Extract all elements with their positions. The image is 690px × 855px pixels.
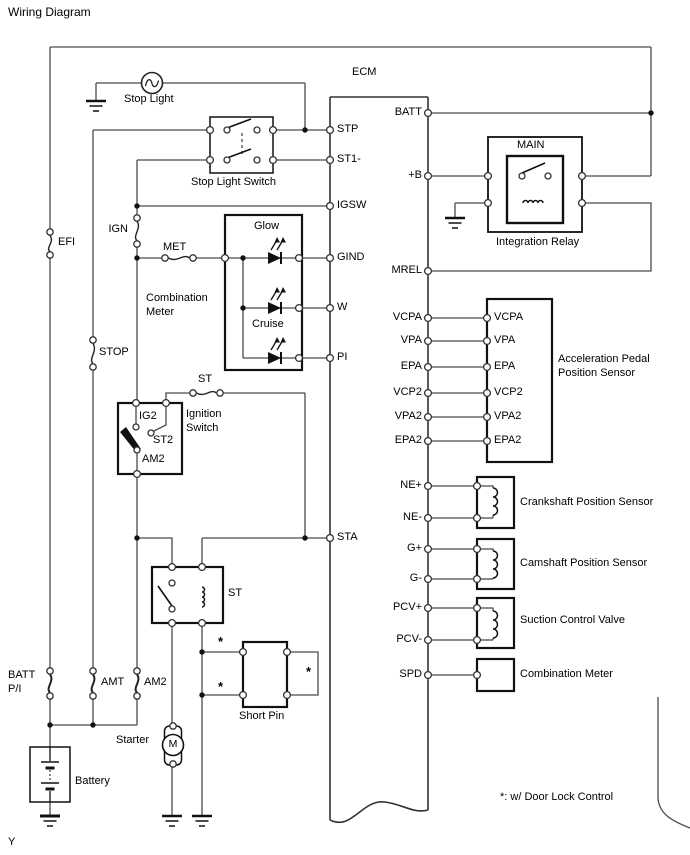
st-relay-coil-icon [202, 587, 205, 607]
st2-label: ST2 [153, 434, 173, 448]
door-lock-footnote: *: w/ Door Lock Control [500, 791, 613, 805]
spd-meter-label: Combination Meter [520, 668, 613, 682]
ig2-label: IG2 [139, 410, 157, 424]
stop-fuse-icon [92, 344, 95, 364]
stop-light-ground-icon [86, 101, 106, 111]
stop-switch-blade-2 [227, 149, 251, 158]
scv-coil-icon [493, 611, 498, 638]
am2-fuse-label: AM2 [144, 676, 167, 690]
ignition-switch-label: Ignition Switch [186, 408, 221, 436]
ecm-pin-ne-plus: NE+ [366, 479, 422, 493]
cam-sensor-box [477, 539, 514, 589]
batt-pi-fuse-label: BATT P/I [8, 669, 35, 697]
ecm-pin-pi: PI [337, 351, 347, 365]
ecm-pin-ne-minus: NE- [366, 511, 422, 525]
app-sensor-label: Acceleration Pedal Position Sensor [558, 353, 650, 381]
met-fuse-icon [169, 257, 190, 260]
app-pin-vcpa: VCPA [494, 311, 523, 325]
ign-fuse-label: IGN [98, 223, 128, 237]
switch-blades [120, 119, 545, 606]
ecm-pin-vcp2: VCP2 [366, 386, 422, 400]
stop-switch-blade-1 [227, 119, 251, 128]
battery-label: Battery [75, 775, 110, 789]
terminals [47, 110, 586, 700]
met-fuse-label: MET [163, 241, 186, 255]
efi-fuse-icon [49, 236, 52, 252]
ecm-label: ECM [352, 66, 376, 80]
main-relay-label: MAIN [517, 139, 545, 153]
ign-fuse-icon [136, 222, 139, 241]
ecm-pin-vpa2: VPA2 [366, 410, 422, 424]
main-relay-box [507, 156, 563, 223]
led-symbols [268, 237, 286, 364]
ecm-pin-spd: SPD [366, 668, 422, 682]
st-fuse-label: ST [198, 373, 212, 387]
amt-fuse-label: AMT [101, 676, 124, 690]
stop-light-bulb-icon [142, 73, 163, 94]
crank-sensor-label: Crankshaft Position Sensor [520, 496, 653, 510]
app-pin-epa: EPA [494, 360, 515, 374]
asterisk-bottom: * [218, 679, 223, 695]
ecm-pin-mrel: MREL [366, 264, 422, 278]
page-marker: Y [8, 836, 15, 850]
glow-led-icon [268, 237, 286, 264]
ecm-pin-batt: BATT [366, 106, 422, 120]
ecm-pin-vpa: VPA [366, 334, 422, 348]
starter-label: Starter [116, 734, 149, 748]
crank-sensor-box [477, 477, 514, 528]
cam-coil-icon [493, 551, 498, 578]
ecm-pin-w: W [337, 301, 347, 315]
stop-light-label: Stop Light [124, 93, 174, 107]
asterisk-right: * [306, 664, 311, 680]
main-relay-coil-icon [523, 201, 543, 203]
integration-relay-label: Integration Relay [496, 236, 579, 250]
ecm-pin-igsw: IGSW [337, 199, 366, 213]
st-relay-blade [158, 586, 172, 606]
amt-link-icon [92, 675, 95, 693]
scv-label: Suction Control Valve [520, 614, 625, 628]
batt-pi-link-icon [49, 675, 52, 693]
am2-link-icon [136, 675, 139, 693]
st-coil-ground-icon [192, 816, 212, 826]
glow-label: Glow [254, 220, 279, 234]
ecm-pin-plus-b: +B [366, 169, 422, 183]
app-pin-vpa: VPA [494, 334, 515, 348]
relay-ground-icon [445, 218, 465, 228]
motor-m-label: M [167, 738, 179, 751]
cruise-led-icon [268, 337, 286, 364]
crank-coil-icon [493, 488, 498, 515]
cam-sensor-label: Camshaft Position Sensor [520, 557, 647, 571]
app-pin-vcp2: VCP2 [494, 386, 523, 400]
starter-ground-icon [162, 816, 182, 826]
ecm-pin-pcv-minus: PCV- [366, 633, 422, 647]
ecm-pin-stp: STP [337, 123, 358, 137]
short-pin-box [243, 642, 287, 707]
combination-meter-box [225, 215, 302, 370]
ecm-pin-gind: GIND [337, 251, 365, 265]
short-pin-label: Short Pin [239, 710, 284, 724]
st-relay-box [152, 567, 223, 623]
ecm-pin-g-minus: G- [366, 572, 422, 586]
am2-contact-label: AM2 [142, 453, 165, 467]
battery-symbol [41, 747, 59, 802]
ecm-pin-epa: EPA [366, 360, 422, 374]
st-relay-label: ST [228, 587, 242, 601]
app-pin-epa2: EPA2 [494, 434, 521, 448]
battery-ground-icon [40, 816, 60, 826]
component-boxes [30, 117, 582, 802]
wiring-diagram-page: Wiring Diagram ECM Stop Light Stop Light… [0, 0, 690, 855]
efi-fuse-label: EFI [58, 236, 75, 250]
main-relay-blade [522, 163, 545, 173]
app-pin-vpa2: VPA2 [494, 410, 521, 424]
ecm-pin-epa2: EPA2 [366, 434, 422, 448]
ecm-pin-sta: STA [337, 531, 358, 545]
ecm-pin-st1: ST1- [337, 153, 361, 167]
ecm-pin-pcv-plus: PCV+ [366, 601, 422, 615]
asterisk-top: * [218, 634, 223, 650]
combination-meter-label: Combination Meter [146, 292, 208, 320]
stop-light-switch-label: Stop Light Switch [191, 176, 276, 190]
w-led-icon [268, 287, 286, 314]
ecm-pin-g-plus: G+ [366, 542, 422, 556]
spd-meter-box [477, 659, 514, 691]
cruise-label: Cruise [252, 318, 284, 332]
st-fuse-icon [197, 392, 217, 395]
ecm-pin-vcpa: VCPA [366, 311, 422, 325]
page-title: Wiring Diagram [8, 5, 91, 20]
stop-fuse-label: STOP [99, 346, 129, 360]
